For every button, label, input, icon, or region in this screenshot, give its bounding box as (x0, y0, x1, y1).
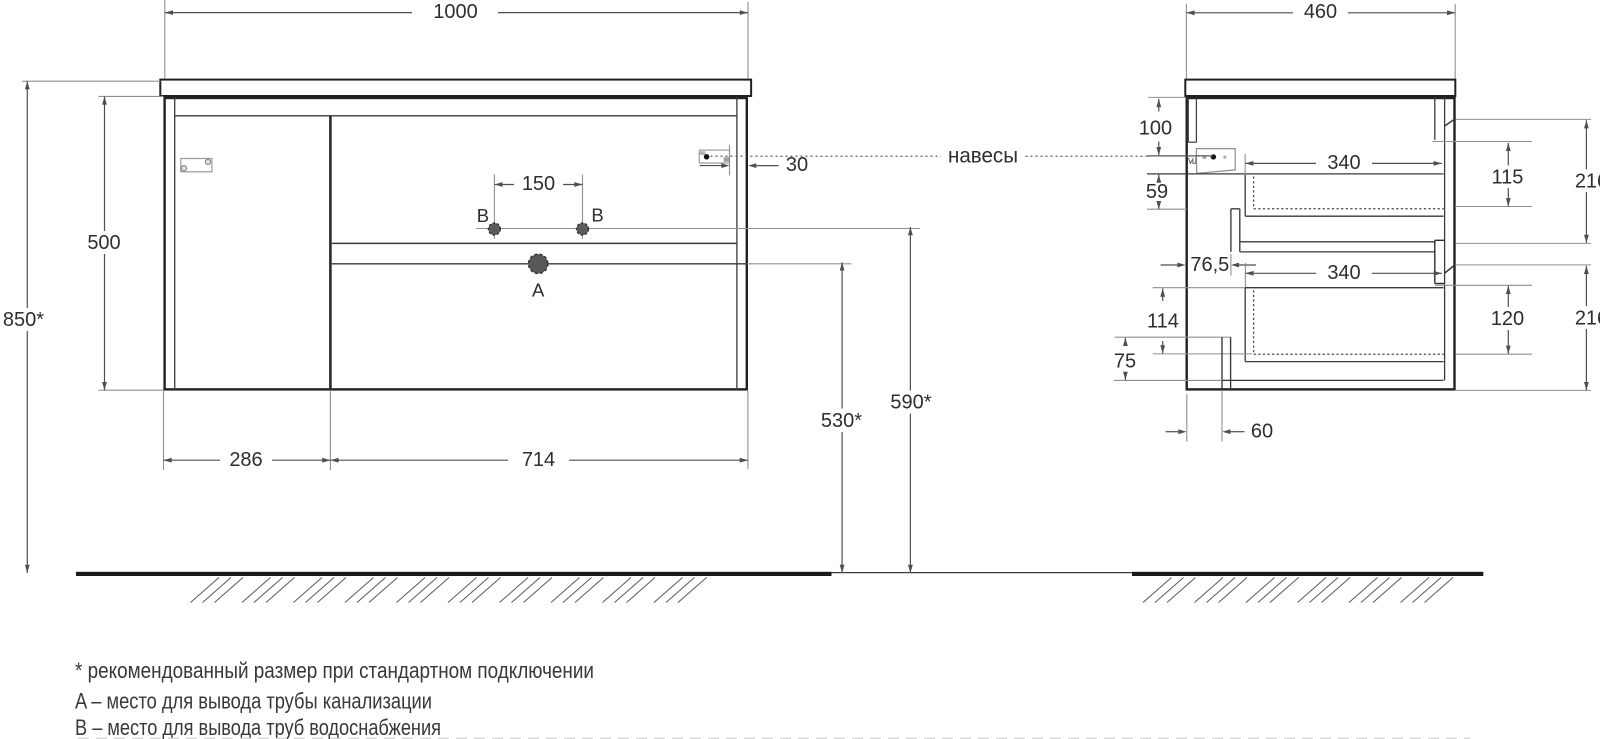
svg-text:340: 340 (1327, 152, 1360, 174)
svg-text:216: 216 (1575, 307, 1600, 329)
svg-text:590*: 590* (890, 392, 931, 414)
svg-text:59: 59 (1146, 181, 1168, 203)
svg-text:1000: 1000 (433, 1, 478, 23)
svg-text:150: 150 (522, 173, 555, 195)
svg-text:714: 714 (522, 449, 555, 471)
svg-text:* рекомендованный размер при с: * рекомендованный размер при стандартном… (75, 658, 594, 683)
svg-text:B: B (477, 205, 489, 226)
svg-text:навесы: навесы (948, 145, 1018, 168)
svg-text:A – место для вывода трубы кан: A – место для вывода трубы канализации (75, 689, 432, 714)
svg-text:850*: 850* (3, 309, 44, 331)
svg-text:76,5: 76,5 (1190, 254, 1229, 276)
svg-text:115: 115 (1491, 166, 1523, 188)
svg-text:75: 75 (1114, 351, 1136, 373)
svg-text:340: 340 (1327, 262, 1360, 284)
svg-text:216: 216 (1575, 171, 1600, 193)
svg-text:100: 100 (1139, 118, 1172, 140)
svg-text:286: 286 (229, 449, 262, 471)
svg-text:B: B (591, 204, 603, 225)
svg-text:60: 60 (1251, 421, 1273, 443)
svg-text:460: 460 (1304, 1, 1337, 23)
svg-text:120: 120 (1491, 308, 1524, 330)
svg-text:530*: 530* (821, 410, 862, 432)
svg-text:500: 500 (87, 232, 120, 254)
svg-text:B – место для вывода труб водо: B – место для вывода труб водоснабжения (75, 715, 441, 739)
svg-text:114: 114 (1147, 310, 1179, 332)
svg-text:30: 30 (786, 154, 808, 176)
svg-text:A: A (532, 279, 545, 300)
